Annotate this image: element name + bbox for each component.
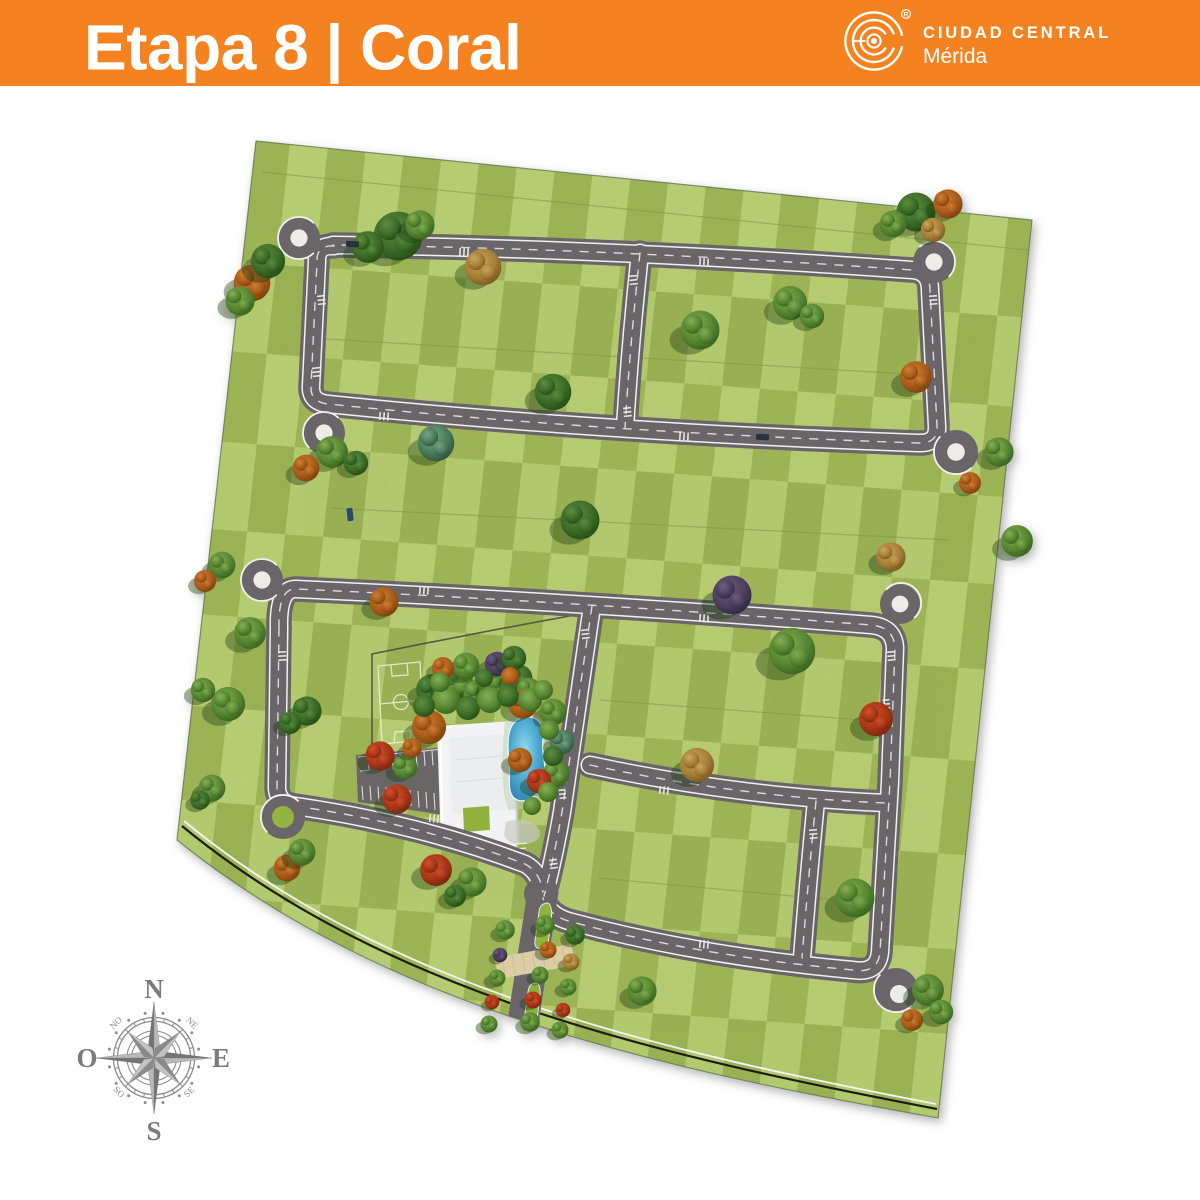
- svg-text:R: R: [904, 12, 909, 19]
- svg-text:E: E: [212, 1043, 230, 1073]
- svg-text:Etapa 8 | Coral: Etapa 8 | Coral: [84, 12, 521, 85]
- svg-text:N: N: [144, 974, 164, 1004]
- svg-text:Mérida: Mérida: [923, 45, 988, 68]
- svg-text:S: S: [146, 1116, 161, 1146]
- svg-text:O: O: [76, 1043, 97, 1073]
- svg-text:CIUDAD CENTRAL: CIUDAD CENTRAL: [923, 24, 1111, 42]
